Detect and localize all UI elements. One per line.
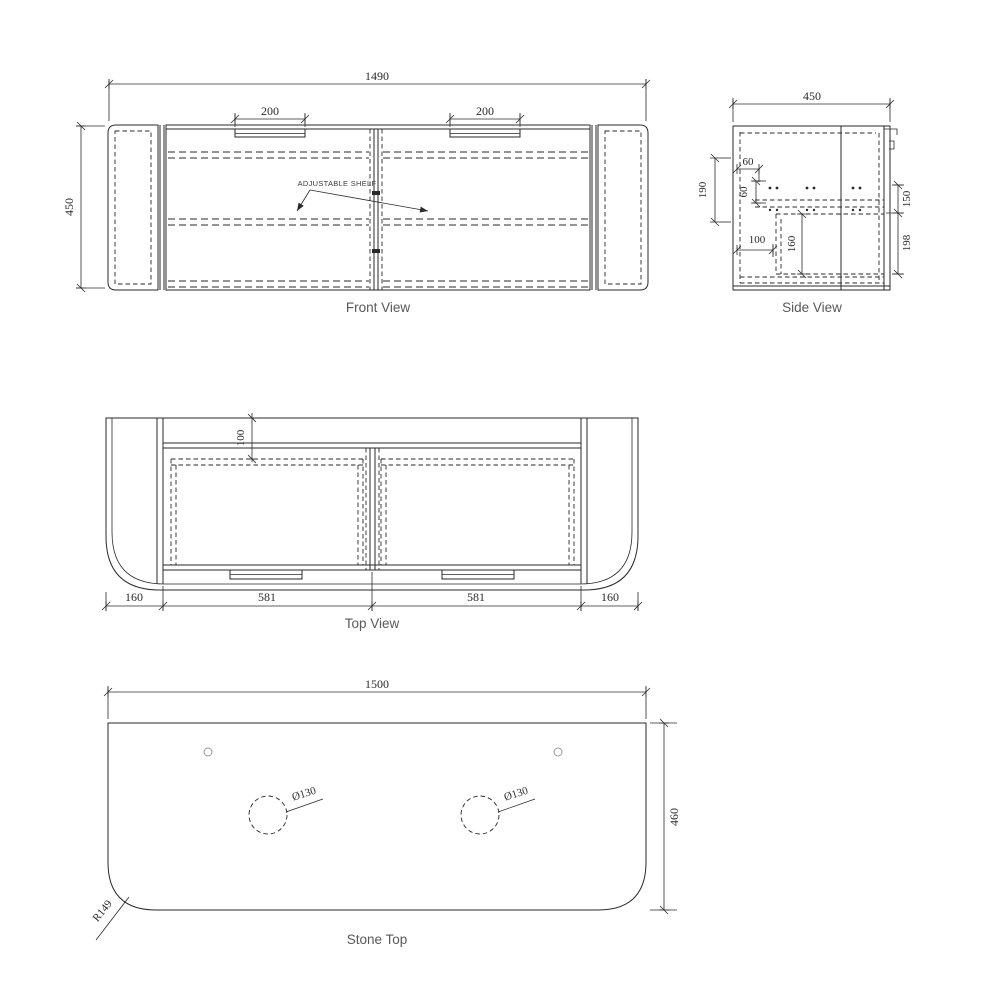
stone-hole-left-text: Ø130 <box>291 785 318 804</box>
basin-hole-left <box>249 796 287 834</box>
stone-dim-width-text: 1500 <box>365 677 389 691</box>
adjustable-shelf-note: ADJUSTABLE SHELF <box>298 179 377 188</box>
front-centre-divider <box>370 129 382 290</box>
side-dim-hole-gap-text: 60 <box>738 186 750 198</box>
front-handle-right <box>450 129 520 137</box>
side-dim-hole-gap: 60 <box>738 177 766 207</box>
top-dim-door-right-text: 581 <box>467 590 485 604</box>
top-dim-left-end-text: 160 <box>125 590 143 604</box>
stone-hole-callout-left: Ø130 <box>286 785 323 812</box>
front-shelf-callout: ADJUSTABLE SHELF <box>297 179 428 211</box>
stone-top-view: 1500 460 Ø130 Ø130 R149 <box>91 677 681 947</box>
tap-hole-right <box>554 748 562 756</box>
front-right-panel-hidden-edge <box>605 131 641 284</box>
stone-dim-width: 1500 <box>104 677 650 719</box>
side-dim-drawer-height: 160 <box>786 210 807 278</box>
front-dim-handle-right-text: 200 <box>476 104 494 118</box>
side-dim-width: 450 <box>729 89 894 122</box>
front-view: 1490 450 <box>62 69 650 315</box>
front-view-label: Front View <box>346 300 411 315</box>
top-view: 100 160 581 581 160 Top View <box>102 413 642 631</box>
side-dim-left-height-text: 190 <box>697 181 709 198</box>
side-dim-right-top-text: 150 <box>901 190 913 207</box>
side-view: 450 <box>697 89 913 315</box>
front-dim-handle-left: 200 <box>231 104 309 127</box>
top-dim-back-inset-text: 100 <box>235 429 247 446</box>
front-dim-height: 450 <box>62 122 105 292</box>
top-handle-right <box>442 570 514 579</box>
top-dim-right-end-text: 160 <box>601 590 619 604</box>
tap-hole-left <box>204 748 212 756</box>
basin-hole-right <box>461 796 499 834</box>
drawing-sheet: 1490 450 <box>0 0 1000 1000</box>
technical-drawing-canvas: 1490 450 <box>0 0 1000 1000</box>
top-handle-left <box>230 570 302 579</box>
top-view-label: Top View <box>345 616 400 631</box>
side-dim-hole-offset: 60 <box>733 156 763 182</box>
front-dim-handle-left-text: 200 <box>261 104 279 118</box>
side-dim-width-text: 450 <box>803 89 821 103</box>
front-handle-left <box>235 129 305 137</box>
top-drawer-right-hidden <box>381 459 574 565</box>
side-dim-hole-offset-text: 60 <box>743 156 755 168</box>
side-carcass <box>733 126 890 290</box>
top-dim-chain: 160 581 581 160 <box>102 572 642 611</box>
front-right-end-panel <box>598 125 648 290</box>
stone-dim-depth-text: 460 <box>667 808 681 826</box>
side-dim-drawer-inset-text: 100 <box>749 234 766 246</box>
top-drawer-left-hidden <box>171 459 364 565</box>
front-dim-height-text: 450 <box>62 198 76 216</box>
side-shelf-pin-holes <box>769 187 862 212</box>
stone-outline <box>108 723 646 910</box>
stone-top-label: Stone Top <box>347 932 408 947</box>
side-dim-left-height: 190 <box>697 154 731 226</box>
top-dim-back-inset: 100 <box>235 413 257 463</box>
side-dim-right-bottom-text: 198 <box>901 234 913 251</box>
front-left-panel-hidden-edge <box>115 131 151 284</box>
front-dim-width: 1490 <box>105 69 650 121</box>
stone-dim-depth: 460 <box>650 719 681 914</box>
top-dim-door-left-text: 581 <box>258 590 276 604</box>
stone-hole-right-text: Ø130 <box>503 785 530 804</box>
side-dim-drawer-height-text: 160 <box>786 235 798 252</box>
top-outline <box>106 418 638 590</box>
front-dim-width-text: 1490 <box>365 69 389 83</box>
front-left-end-panel <box>108 125 158 290</box>
front-dim-handle-right: 200 <box>446 104 524 127</box>
top-centre-divider <box>366 448 379 570</box>
stone-radius-callout: R149 <box>91 897 129 940</box>
stone-hole-callout-right: Ø130 <box>498 785 535 812</box>
side-view-label: Side View <box>782 300 842 315</box>
